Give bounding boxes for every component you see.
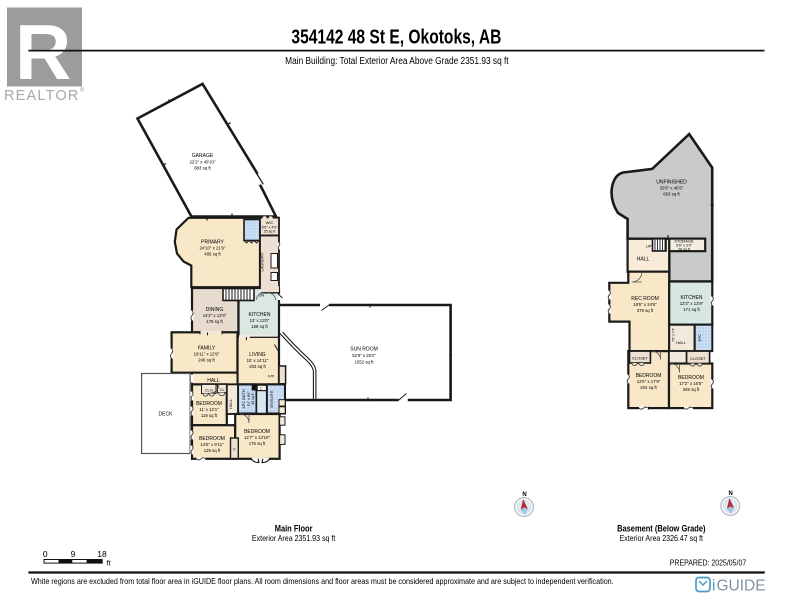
svg-text:26 sq ft: 26 sq ft — [678, 248, 690, 252]
svg-text:WIC: WIC — [266, 220, 274, 225]
svg-text:Main Building: Total Exterior: Main Building: Total Exterior Area Above… — [285, 54, 509, 66]
svg-text:DECK: DECK — [159, 412, 174, 418]
svg-text:204 sq ft: 204 sq ft — [640, 385, 657, 390]
svg-text:19'11" x 12'9": 19'11" x 12'9" — [194, 352, 220, 357]
svg-text:STORAGE: STORAGE — [674, 238, 694, 243]
svg-text:PREPARED: 2025/05/07: PREPARED: 2025/05/07 — [670, 558, 746, 568]
svg-text:663 sq ft: 663 sq ft — [663, 192, 680, 197]
svg-text:1552 sq ft: 1552 sq ft — [355, 360, 375, 365]
svg-text:HALL: HALL — [676, 340, 687, 345]
svg-text:CLOSET: CLOSET — [632, 356, 649, 361]
svg-text:15' x 14'11": 15' x 14'11" — [247, 358, 269, 363]
svg-text:SUN ROOM: SUN ROOM — [350, 347, 378, 353]
svg-text:HALL: HALL — [207, 378, 220, 384]
svg-text:119 sq ft: 119 sq ft — [201, 413, 218, 418]
svg-text:171 sq ft: 171 sq ft — [683, 307, 700, 312]
svg-text:24'10" x 21'9": 24'10" x 21'9" — [200, 246, 226, 251]
svg-text:25 sq ft: 25 sq ft — [264, 230, 276, 234]
svg-text:44 sq ft: 44 sq ft — [251, 393, 255, 404]
svg-text:9: 9 — [71, 549, 76, 559]
svg-text:485 sq ft: 485 sq ft — [204, 252, 221, 257]
svg-text:UP: UP — [646, 243, 652, 248]
svg-text:32'8" x 46'5": 32'8" x 46'5" — [660, 186, 684, 191]
svg-text:12'3" x 13'9": 12'3" x 13'9" — [680, 301, 704, 306]
svg-text:F/P: F/P — [268, 374, 275, 379]
svg-text:168 sq ft: 168 sq ft — [251, 324, 268, 329]
svg-text:R: R — [15, 8, 71, 96]
svg-text:REALTOR: REALTOR — [4, 88, 80, 104]
svg-text:7'0" x 7'3": 7'0" x 7'3" — [672, 328, 676, 342]
svg-text:203 sq ft: 203 sq ft — [249, 364, 266, 369]
svg-text:White regions are excluded fro: White regions are excluded from total fl… — [31, 576, 614, 586]
svg-text:i: i — [712, 578, 715, 595]
svg-text:ft: ft — [107, 559, 112, 568]
svg-text:LAUNDRY: LAUNDRY — [260, 252, 265, 271]
svg-text:13' x 13'0": 13' x 13'0" — [250, 318, 270, 323]
svg-text:N: N — [522, 492, 526, 498]
svg-text:22'2" x 40'10": 22'2" x 40'10" — [190, 160, 216, 165]
svg-text:17'2" x 16'5": 17'2" x 16'5" — [679, 381, 703, 386]
svg-text:Exterior Area 2326.47 sq ft: Exterior Area 2326.47 sq ft — [620, 533, 704, 543]
svg-text:Main Floor: Main Floor — [275, 524, 314, 534]
svg-text:18: 18 — [97, 549, 107, 559]
svg-text:C: C — [233, 447, 236, 452]
svg-text:ENSUITE: ENSUITE — [269, 390, 274, 408]
svg-text:18'6" x 24'6": 18'6" x 24'6" — [633, 302, 657, 307]
svg-text:12'7" x 13'10": 12'7" x 13'10" — [244, 435, 270, 440]
svg-text:N: N — [729, 491, 733, 497]
svg-text:52'9" x 29'2": 52'9" x 29'2" — [352, 353, 376, 358]
svg-text:354142 48 St E, Okotoks, AB: 354142 48 St E, Okotoks, AB — [291, 26, 501, 48]
svg-text:®: ® — [80, 87, 85, 94]
svg-text:Exterior Area 2351.93 sq ft: Exterior Area 2351.93 sq ft — [252, 533, 336, 543]
svg-text:4PC BATH: 4PC BATH — [241, 389, 246, 408]
svg-text:11' x 12'1": 11' x 12'1" — [199, 407, 219, 412]
svg-text:3PC: 3PC — [697, 334, 702, 342]
svg-text:Basement (Below Grade): Basement (Below Grade) — [617, 524, 706, 534]
svg-text:175 sq ft: 175 sq ft — [249, 441, 266, 446]
svg-text:379 sq ft: 379 sq ft — [637, 308, 654, 313]
svg-text:12'6" x 17'9": 12'6" x 17'9" — [637, 379, 661, 384]
svg-text:883 sq ft: 883 sq ft — [194, 166, 211, 171]
svg-text:GARAGE: GARAGE — [192, 153, 214, 159]
svg-text:249 sq ft: 249 sq ft — [198, 358, 215, 363]
svg-text:14'5" x 9'11": 14'5" x 9'11" — [200, 442, 224, 447]
svg-text:178 sq ft: 178 sq ft — [206, 319, 223, 324]
svg-text:129 sq ft: 129 sq ft — [204, 448, 221, 453]
svg-text:CL: CL — [220, 387, 226, 392]
svg-text:CLOSET: CLOSET — [690, 356, 707, 361]
svg-text:HALL: HALL — [228, 398, 233, 409]
svg-text:0: 0 — [43, 549, 48, 559]
svg-text:HALL: HALL — [637, 257, 650, 263]
svg-text:14'2" x 12'8": 14'2" x 12'8" — [203, 313, 227, 318]
svg-text:CLO: CLO — [205, 388, 213, 393]
svg-text:GUIDE: GUIDE — [717, 578, 766, 595]
svg-text:265 sq ft: 265 sq ft — [683, 387, 700, 392]
